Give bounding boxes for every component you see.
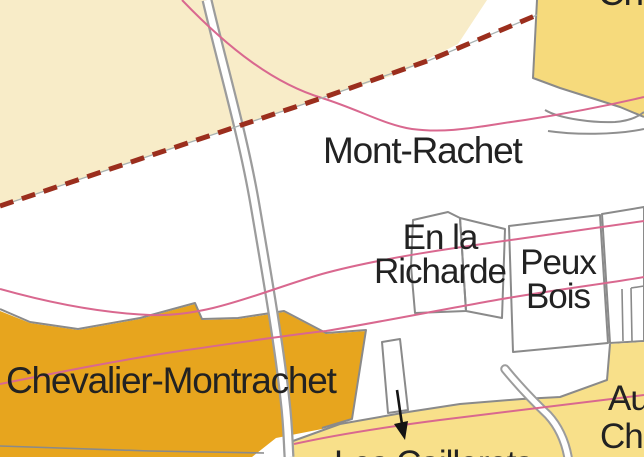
- sliver-parcel: [382, 339, 408, 413]
- label-mont-rachet: Mont-Rachet: [323, 132, 522, 169]
- label-en-la-richarde-line2: Richarde: [365, 255, 515, 289]
- map-canvas[interactable]: Ch Mont-Rachet En la Richarde Peux Bois …: [0, 0, 644, 457]
- right-strip-lines: [622, 286, 644, 341]
- label-peux-bois: Peux Bois: [498, 246, 618, 314]
- label-au-chaniot-line1: Au: [608, 381, 644, 416]
- hillside-parcel: [0, 0, 487, 207]
- label-chevalier-montrachet: Chevalier-Montrachet: [6, 362, 336, 399]
- label-bottom-partial: Les Caillerets: [334, 446, 532, 457]
- label-en-la-richarde: En la Richarde: [365, 221, 515, 289]
- label-au-chaniot-line2: Chan: [600, 419, 644, 454]
- label-en-la-richarde-line1: En la: [365, 221, 515, 255]
- label-top-right-partial: Ch: [598, 0, 643, 11]
- label-peux-bois-line1: Peux: [498, 246, 618, 280]
- top-right-parcel: [533, 0, 644, 117]
- track-lower: [548, 129, 644, 134]
- label-peux-bois-line2: Bois: [498, 280, 618, 314]
